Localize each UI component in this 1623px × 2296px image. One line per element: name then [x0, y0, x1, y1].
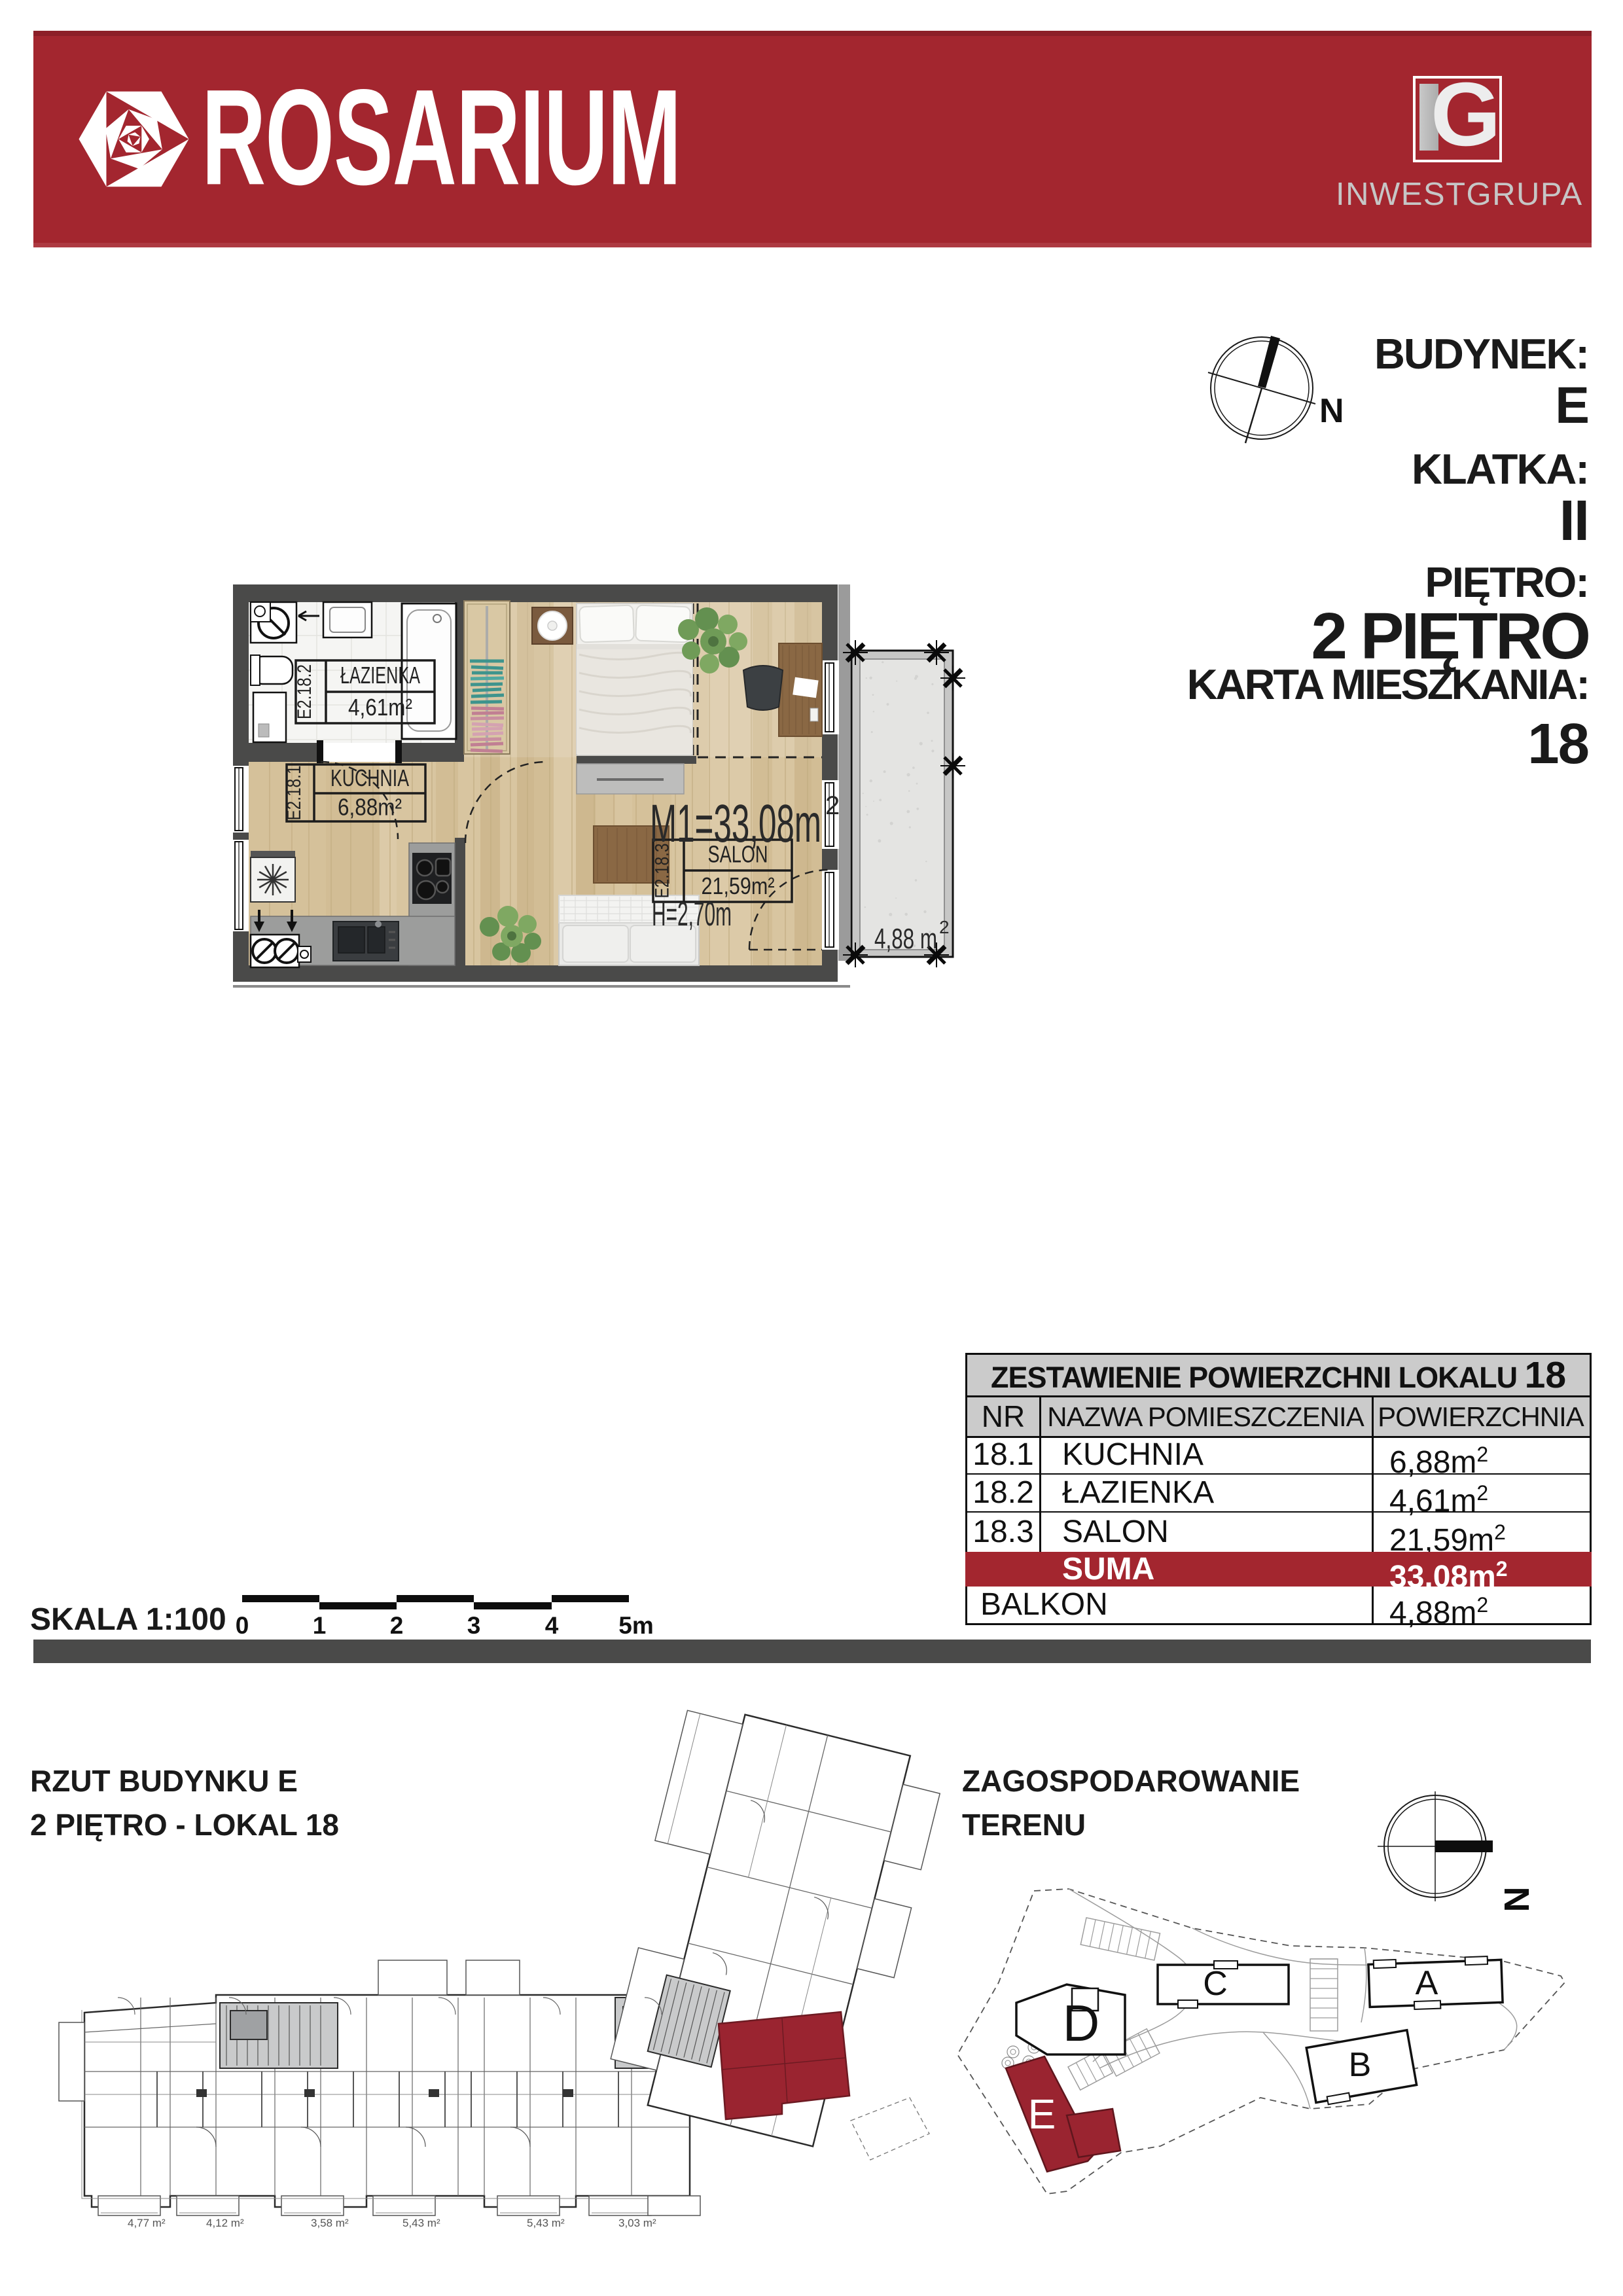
svg-text:N: N: [1497, 1887, 1536, 1912]
svg-text:5,43 m²: 5,43 m²: [527, 2217, 565, 2229]
svg-text:C: C: [1203, 1965, 1228, 2003]
svg-text:4,12 m²: 4,12 m²: [206, 2217, 244, 2229]
svg-text:6,88m²: 6,88m²: [338, 794, 402, 821]
svg-text:1: 1: [313, 1612, 327, 1639]
svg-text:2: 2: [939, 917, 950, 937]
svg-text:E2.18.2: E2.18.2: [294, 664, 315, 719]
svg-text:3,58 m²: 3,58 m²: [311, 2217, 349, 2229]
svg-text:N: N: [1319, 392, 1344, 430]
svg-text:3,03 m²: 3,03 m²: [618, 2217, 656, 2229]
svg-text:KUCHNIA: KUCHNIA: [330, 764, 409, 791]
svg-text:5m: 5m: [618, 1612, 653, 1639]
svg-text:5,43 m²: 5,43 m²: [402, 2217, 440, 2229]
svg-text:E2.18.1: E2.18.1: [283, 766, 305, 821]
svg-text:ŁAZIENKA: ŁAZIENKA: [340, 662, 420, 689]
svg-text:4,88 m: 4,88 m: [874, 923, 937, 955]
svg-text:M1=33,08m: M1=33,08m: [650, 794, 821, 853]
svg-text:A: A: [1416, 1964, 1438, 2002]
svg-text:B: B: [1349, 2046, 1372, 2084]
svg-text:2: 2: [390, 1612, 404, 1639]
svg-text:E: E: [1028, 2090, 1056, 2138]
svg-text:4,77 m²: 4,77 m²: [128, 2217, 166, 2229]
svg-text:4: 4: [545, 1612, 559, 1639]
svg-text:4,61m²: 4,61m²: [348, 694, 412, 721]
svg-text:0: 0: [236, 1612, 249, 1639]
svg-text:2: 2: [825, 791, 840, 820]
svg-text:H=2,70m: H=2,70m: [652, 895, 732, 933]
svg-text:D: D: [1063, 1994, 1099, 2052]
svg-text:3: 3: [467, 1612, 481, 1639]
